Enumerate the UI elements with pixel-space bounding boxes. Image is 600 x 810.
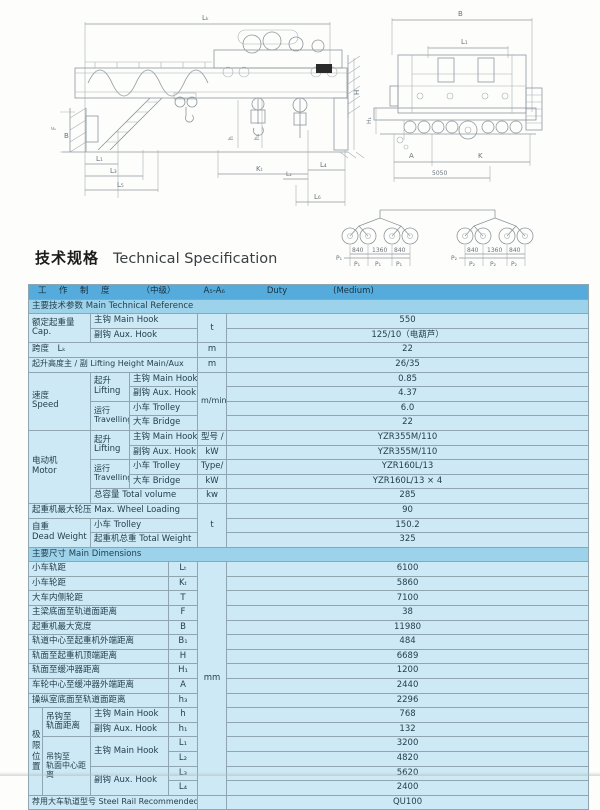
table-cell: 小车 Trolley — [130, 460, 198, 475]
table-cell: 大车内侧轮距 — [29, 591, 169, 606]
table-cell: 起重机最大轮压 Max. Wheel Loading — [29, 503, 198, 518]
dim-label-l1-end: L₁ — [461, 38, 468, 46]
table-cell: 11980 — [227, 620, 589, 635]
table-cell: 2296 — [227, 693, 589, 708]
table-row: 起重机最大宽度B11980 — [29, 620, 589, 635]
table-cell: Type/ — [198, 460, 227, 475]
table-cell: 副钩 Aux. Hook — [91, 328, 198, 343]
wheel-p1-c: P₁ — [396, 261, 403, 268]
table-cell: kW — [198, 474, 227, 489]
dim-label-5050: 5050 — [432, 170, 447, 177]
table-cell: 90 — [227, 503, 589, 518]
table-cell: 6100 — [227, 562, 589, 577]
table-cell: 轨道中心至起重机外端距离 — [29, 635, 169, 650]
table-cell: 起升 Lifting — [91, 372, 130, 401]
table-row: 大车内侧轮距T7100 — [29, 591, 589, 606]
table-cell: 1200 — [227, 664, 589, 679]
table-cell: 6689 — [227, 649, 589, 664]
table-cell: 起升 Lifting — [91, 430, 130, 459]
duty-part: (Medium) — [333, 287, 374, 297]
end-view: B L₁ H₁ A K — [366, 10, 542, 182]
duty-header-cell: 工 作 制 度（中级）A₅-A₆Duty(Medium) — [29, 285, 589, 300]
table-cell: m — [198, 357, 227, 372]
table-cell: YZR160L/13 — [227, 460, 589, 475]
table-cell: 2440 — [227, 679, 589, 694]
wheel-group-p2: P₂ — [451, 255, 458, 262]
table-cell: 主要尺寸 Main Dimensions — [29, 547, 589, 562]
table-cell: 0.85 — [227, 372, 589, 387]
table-cell: 主钩 Main Hook — [91, 314, 198, 329]
table-cell: 运行 Travelling — [91, 401, 130, 430]
dim-label-l2: L₂ — [286, 171, 292, 178]
table-cell: 自重 Dead Weight — [29, 518, 91, 547]
dim-label-l3: L₃ — [110, 167, 117, 175]
table-cell: 副钩 Aux. Hook — [130, 387, 198, 402]
table-cell: 4.37 — [227, 387, 589, 402]
table-cell: 3200 — [227, 737, 589, 752]
duty-part: （中级） — [142, 287, 176, 297]
table-cell: B — [169, 620, 198, 635]
table-row: 主要尺寸 Main Dimensions — [29, 547, 589, 562]
table-cell: 325 — [227, 533, 589, 548]
table-cell: 大车 Bridge — [130, 474, 198, 489]
table-row: 运行 Travelling小车 TrolleyType/YZR160L/13 — [29, 460, 589, 475]
dim-label-l5: L₅ — [117, 181, 124, 189]
table-cell: 轨面至起重机顶端距离 — [29, 649, 169, 664]
table-cell: 大车 Bridge — [130, 416, 198, 431]
table-cell: m — [198, 343, 227, 358]
table-row: 自重 Dead Weight小车 Trolley150.2 — [29, 518, 589, 533]
table-row: 小车轨距Lₜmm6100 — [29, 562, 589, 577]
table-row: 副钩 Aux. Hook125/10（电葫芦） — [29, 328, 589, 343]
dim-label-l6: L₆ — [314, 193, 321, 201]
dim-label-a: A — [409, 152, 414, 160]
table-row: 极 限 位 置吊钩至 轨面距离主钩 Main Hookh768 — [29, 708, 589, 723]
table-cell: kw — [198, 489, 227, 504]
table-cell: L₄ — [169, 781, 198, 796]
duty-part: A₅-A₆ — [204, 287, 225, 297]
table-cell: F — [169, 606, 198, 621]
table-cell: 主要技术参数 Main Technical Reference — [29, 299, 589, 314]
table-cell: kW — [198, 445, 227, 460]
table-cell: QU100 — [227, 795, 589, 810]
table-cell: 运行 Travelling — [91, 460, 130, 489]
wheel-p1-a: P₁ — [354, 261, 361, 268]
dim-label-l1: L₁ — [96, 155, 103, 163]
table-cell: 总容量 Total volume — [91, 489, 198, 504]
duty-part: Duty — [267, 287, 287, 297]
table-row: 电动机 Motor起升 Lifting主钩 Main Hook型号 /YZR35… — [29, 430, 589, 445]
dim-label-b-side: B — [64, 132, 69, 140]
table-cell: 38 — [227, 606, 589, 621]
table-cell: 荐用大车轨道型号 Steel Rail Recommended — [29, 795, 198, 810]
table-row: 工 作 制 度（中级）A₅-A₆Duty(Medium) — [29, 285, 589, 300]
table-row: 操纵室底面至轨道面距离h₃2296 — [29, 693, 589, 708]
wheel-dim-840-right-b: 840 — [509, 247, 521, 254]
table-cell: 主钩 Main Hook — [91, 708, 169, 723]
table-cell: 150.2 — [227, 518, 589, 533]
table-cell: 极 限 位 置 — [29, 708, 43, 796]
dim-label-h1-end: H₁ — [366, 116, 373, 124]
table-cell: 电动机 Motor — [29, 430, 91, 503]
wheel-dim-840-left-a: 840 — [352, 247, 364, 254]
dim-label-kt: Kₜ — [256, 165, 263, 173]
table-row: 速度 Speed起升 Lifting主钩 Main Hookm/min0.85 — [29, 372, 589, 387]
table-cell: 2400 — [227, 781, 589, 796]
table-cell: 起升高度主 / 副 Lifting Height Main/Aux — [29, 357, 198, 372]
table-cell: 起重机总重 Total Weight — [91, 533, 198, 548]
table-row: 起重机最大轮压 Max. Wheel Loadingt90 — [29, 503, 589, 518]
table-cell: 操纵室底面至轨道面距离 — [29, 693, 169, 708]
table-row: 小车轮距Kₜ5860 — [29, 576, 589, 591]
scan-shadow — [0, 772, 600, 776]
table-row: 车轮中心至缓冲器外端距离A2440 — [29, 679, 589, 694]
wheel-group-p1: P₁ — [336, 255, 343, 262]
wheel-p1-b: P₁ — [375, 261, 382, 268]
table-row: 副钩 Aux. Hookh₁132 — [29, 722, 589, 737]
table-cell: h₁ — [169, 722, 198, 737]
title-english: Technical Specification — [113, 251, 277, 267]
wheel-dim-1360-left: 1360 — [372, 247, 387, 254]
table-cell: 速度 Speed — [29, 372, 91, 430]
table-cell: t — [198, 314, 227, 343]
table-cell: 车轮中心至缓冲器外端距离 — [29, 679, 169, 694]
crane-technical-drawing: Lₖ — [0, 0, 600, 282]
table-row: 总容量 Total volumekw285 — [29, 489, 589, 504]
table-row: 主要技术参数 Main Technical Reference — [29, 299, 589, 314]
dim-label-h: H — [353, 90, 361, 95]
table-cell: H₁ — [169, 664, 198, 679]
table-cell: 主钩 Main Hook — [91, 737, 169, 766]
table-cell: 4820 — [227, 752, 589, 767]
table-cell: 小车轨距 — [29, 562, 169, 577]
table-cell: 吊钩至 轨面中心距离 — [43, 737, 91, 795]
table-cell: 550 — [227, 314, 589, 329]
table-cell: 主钩 Main Hook — [130, 430, 198, 445]
dim-label-h1-hook: h₁ — [254, 133, 261, 140]
table-cell: YZR355M/110 — [227, 445, 589, 460]
table-row: 起重机总重 Total Weight325 — [29, 533, 589, 548]
table-cell: 22 — [227, 416, 589, 431]
table-cell: YZR355M/110 — [227, 430, 589, 445]
table-cell: 轨面至缓冲器距离 — [29, 664, 169, 679]
table-cell: 小车 Trolley — [91, 518, 198, 533]
table-cell: 副钩 Aux. Hook — [91, 766, 169, 795]
table-cell: 额定起重量 Cap. — [29, 314, 91, 343]
table-row: 主梁底面至轨道面距离F38 — [29, 606, 589, 621]
table-cell: 22 — [227, 343, 589, 358]
table-cell: 6.0 — [227, 401, 589, 416]
table-cell: 副钩 Aux. Hook — [130, 445, 198, 460]
table-row: 轨面至缓冲器距离H₁1200 — [29, 664, 589, 679]
table-cell: 125/10（电葫芦） — [227, 328, 589, 343]
wheel-p2-c: P₂ — [511, 261, 518, 268]
wheel-p2-a: P₂ — [469, 261, 476, 268]
table-cell: 副钩 Aux. Hook — [91, 722, 169, 737]
title-chinese: 技术规格 — [35, 249, 99, 267]
table-cell: m/min — [198, 372, 227, 430]
table-cell — [198, 795, 227, 810]
table-row: 荐用大车轨道型号 Steel Rail RecommendedQU100 — [29, 795, 589, 810]
table-cell: h₃ — [169, 693, 198, 708]
table-cell: Lₜ — [169, 562, 198, 577]
table-row: 轨道中心至起重机外端距离B₁484 — [29, 635, 589, 650]
table-cell: H — [169, 649, 198, 664]
table-cell: 跨度 Lₖ — [29, 343, 198, 358]
table-cell: T — [169, 591, 198, 606]
dim-label-b-end: B — [458, 10, 463, 18]
dim-label-lk: Lₖ — [202, 14, 209, 22]
table-row: 轨面至起重机顶端距离H6689 — [29, 649, 589, 664]
table-cell: 484 — [227, 635, 589, 650]
table-cell: 小车 Trolley — [130, 401, 198, 416]
table-cell: 主钩 Main Hook — [130, 372, 198, 387]
table-row: 吊钩至 轨面中心距离主钩 Main HookL₁3200 — [29, 737, 589, 752]
table-cell: L₁ — [169, 737, 198, 752]
table-cell: L₂ — [169, 752, 198, 767]
dim-label-l4: L₄ — [320, 161, 327, 169]
wheel-dim-1360-right: 1360 — [487, 247, 502, 254]
table-cell: 132 — [227, 722, 589, 737]
table-cell: 7100 — [227, 591, 589, 606]
side-view: Lₖ — [51, 14, 364, 206]
table-cell: 26/35 — [227, 357, 589, 372]
table-cell: 吊钩至 轨面距离 — [43, 708, 91, 737]
technical-specification-table: 工 作 制 度（中级）A₅-A₆Duty(Medium)主要技术参数 Main … — [28, 284, 589, 810]
table-row: 运行 Travelling小车 Trolley6.0 — [29, 401, 589, 416]
table-cell: h — [169, 708, 198, 723]
table-row: 额定起重量 Cap.主钩 Main Hookt550 — [29, 314, 589, 329]
wheel-dim-840-left-b: 840 — [394, 247, 406, 254]
wheel-p2-b: P₂ — [490, 261, 497, 268]
dim-label-f: F — [51, 126, 58, 130]
crane-drawing-svg: Lₖ — [0, 0, 600, 282]
table-cell: A — [169, 679, 198, 694]
table-cell: 5860 — [227, 576, 589, 591]
table-cell: YZR160L/13 × 4 — [227, 474, 589, 489]
table-cell: 285 — [227, 489, 589, 504]
table-cell: 型号 / — [198, 430, 227, 445]
table-cell: 768 — [227, 708, 589, 723]
table-cell: B₁ — [169, 635, 198, 650]
table-cell: mm — [198, 562, 227, 796]
table-cell: t — [198, 503, 227, 547]
table-row: 起升高度主 / 副 Lifting Height Main/Auxm26/35 — [29, 357, 589, 372]
dim-label-h-hook: h — [228, 136, 235, 140]
table-cell: 小车轮距 — [29, 576, 169, 591]
duty-part: 工 作 制 度 — [38, 287, 112, 297]
wheel-dim-840-right-a: 840 — [467, 247, 479, 254]
table-cell: Kₜ — [169, 576, 198, 591]
table-cell: 起重机最大宽度 — [29, 620, 169, 635]
wheel-load-diagram: 840 1360 840 P₁ P₁ P₁ P₁ 840 1360 840 P₂… — [336, 210, 533, 268]
dim-label-k: K — [478, 152, 483, 160]
section-title: 技术规格Technical Specification — [35, 247, 277, 268]
table-cell: 主梁底面至轨道面距离 — [29, 606, 169, 621]
table-row: 跨度 Lₖm22 — [29, 343, 589, 358]
